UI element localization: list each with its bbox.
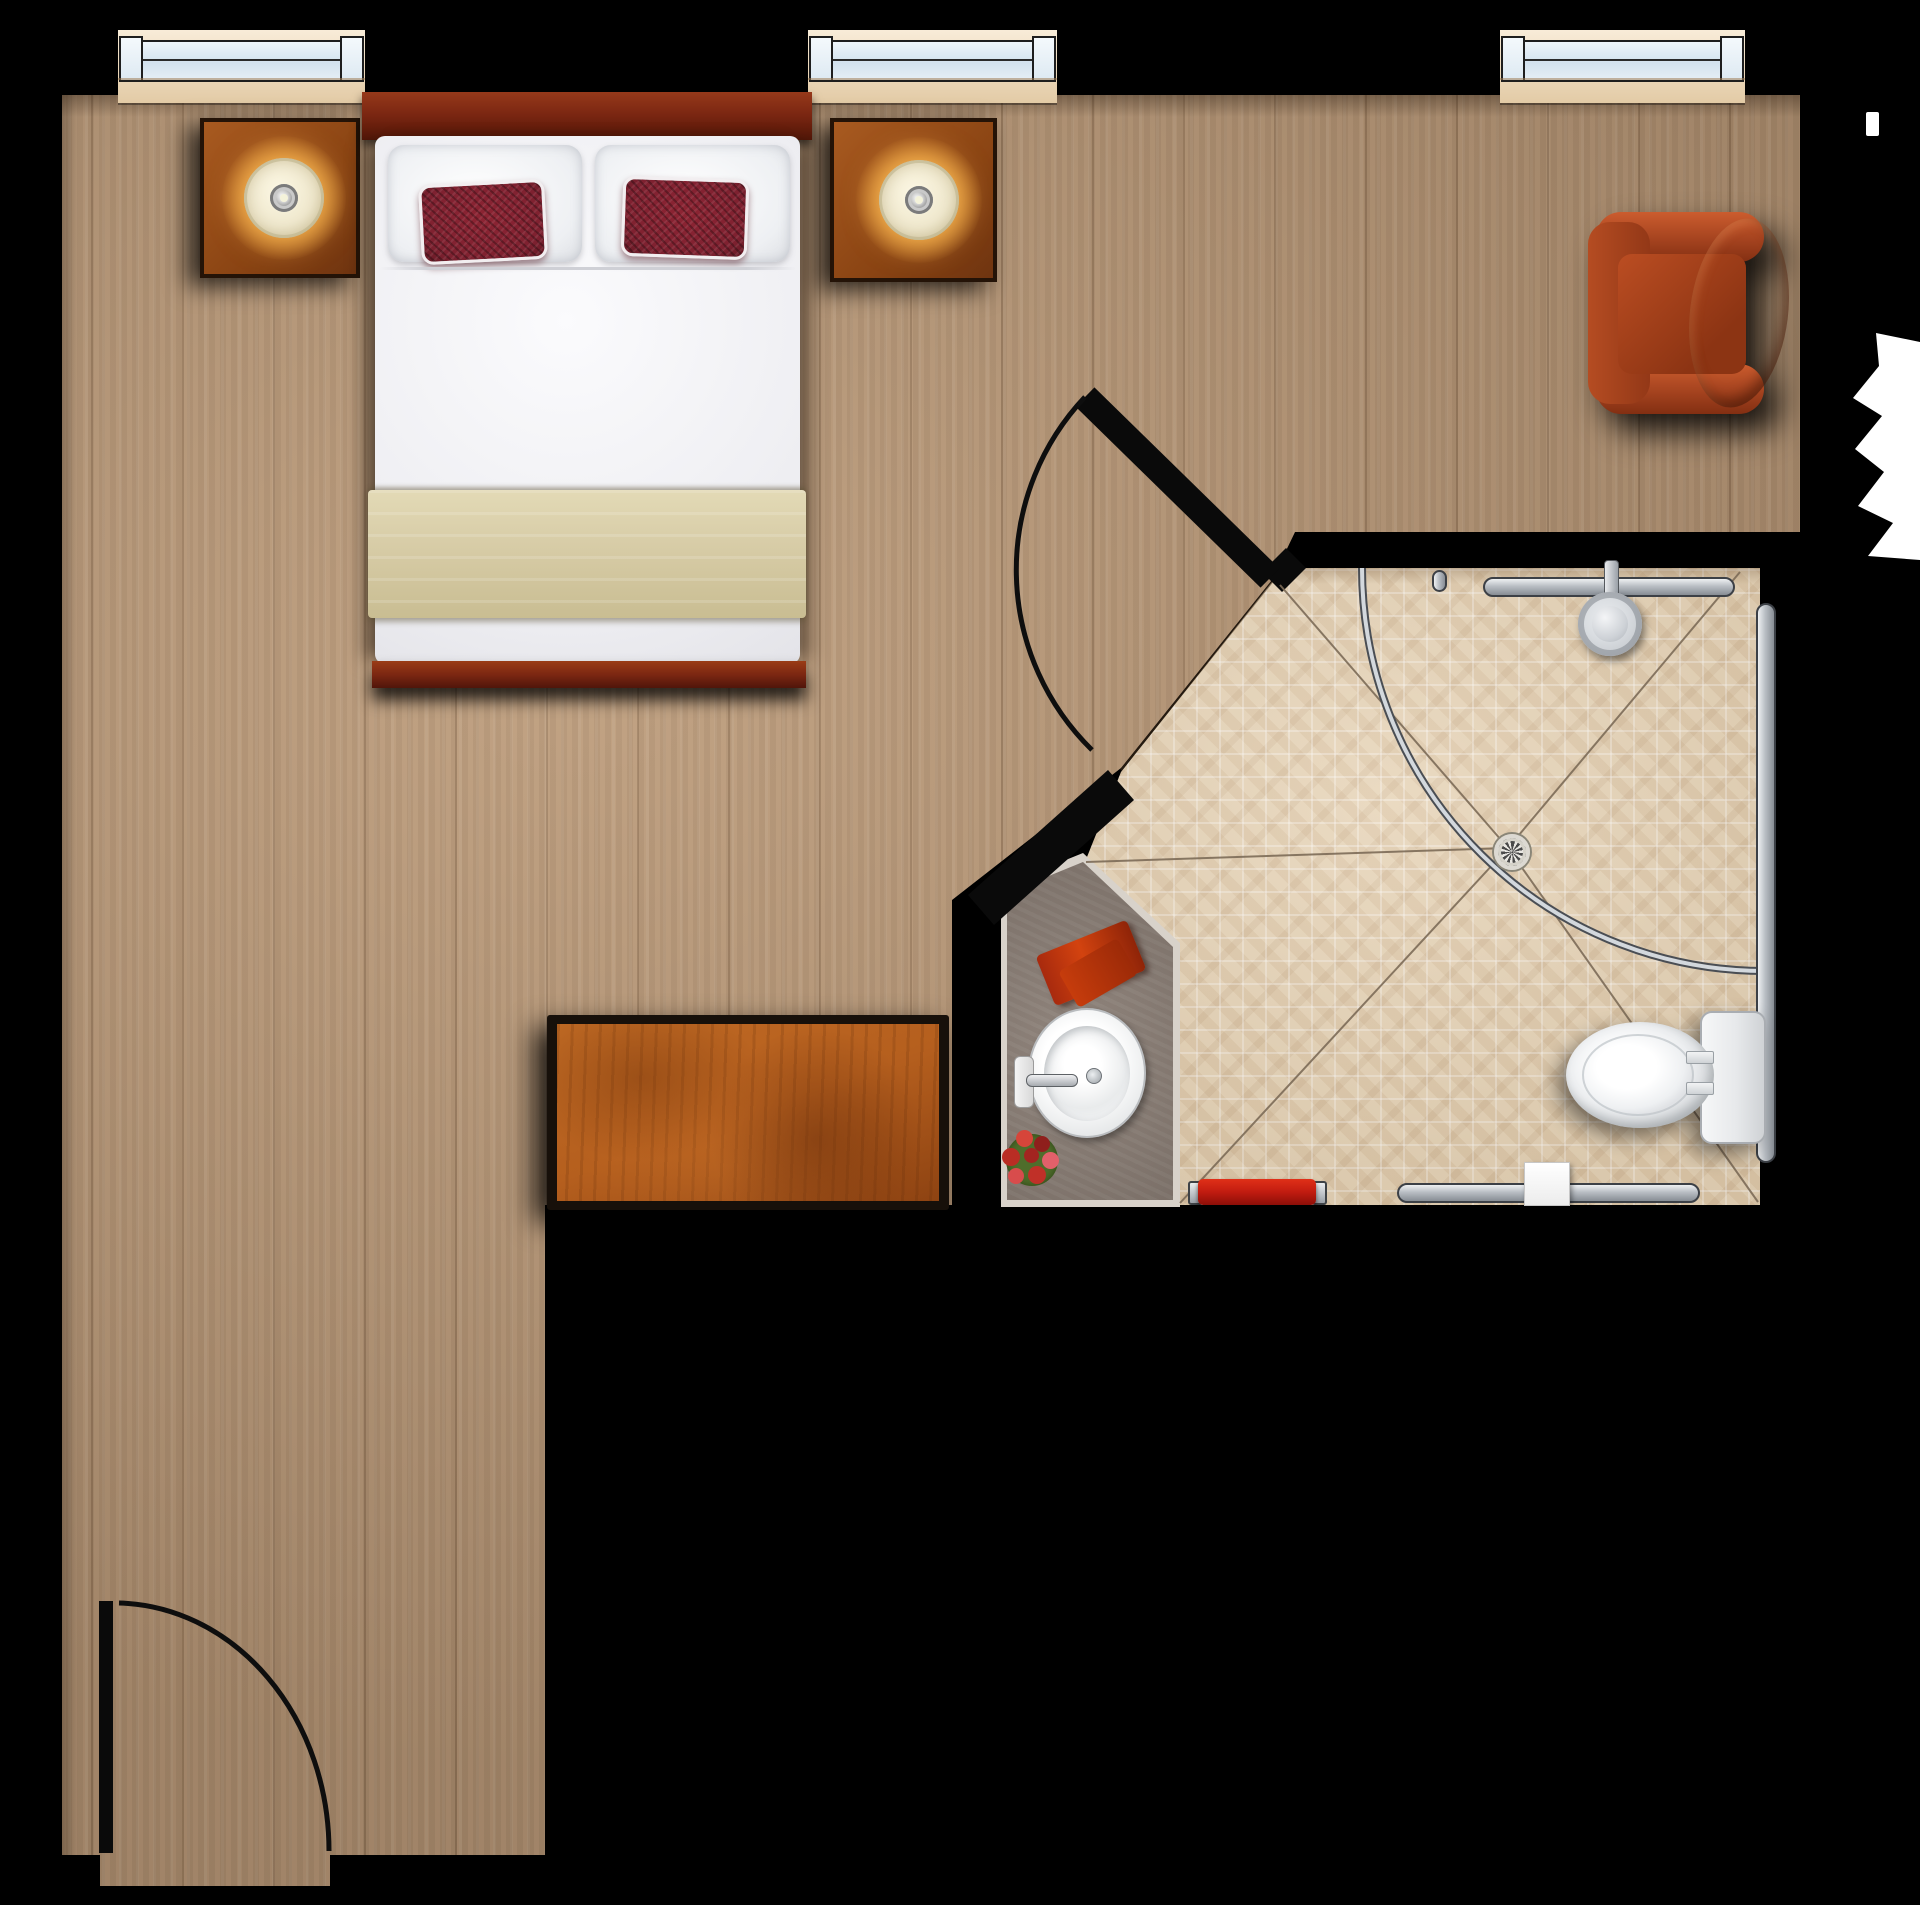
flower — [1002, 1148, 1020, 1166]
flower — [1028, 1166, 1046, 1184]
window-mullion — [817, 59, 1048, 61]
window-end-cap — [809, 36, 833, 82]
window-end-cap — [1720, 36, 1744, 82]
shower-curtain-rod-outline — [1362, 568, 1770, 971]
dresser — [547, 1015, 949, 1210]
bed-sheet-fold-line — [380, 267, 796, 270]
window-sill-line — [1500, 78, 1745, 80]
lamp-bulb-highlight — [280, 194, 288, 202]
window-left-glass — [127, 40, 356, 82]
flower — [1042, 1152, 1059, 1169]
tissue-box — [1524, 1162, 1570, 1206]
shower-drain — [1494, 834, 1530, 870]
dresser-top — [557, 1024, 939, 1201]
armchair — [1588, 212, 1788, 414]
shower-curtain-rod — [1362, 568, 1770, 971]
sink-drain — [1086, 1068, 1102, 1084]
curtain-hook-stub — [1432, 570, 1447, 592]
window-right-glass — [1509, 40, 1736, 82]
entry-door-swing-arc — [119, 1603, 329, 1851]
window-end-cap — [340, 36, 364, 82]
window-mullion — [127, 59, 356, 61]
bed-footboard — [372, 661, 806, 688]
window-sill-line — [808, 78, 1057, 80]
flower — [1024, 1148, 1039, 1163]
diagonal-wall — [968, 770, 1134, 925]
lamp-bulb-highlight — [915, 196, 923, 204]
flower — [1008, 1168, 1024, 1184]
window-end-cap — [1032, 36, 1056, 82]
nightstand-right — [830, 118, 997, 282]
floor-plan-canvas — [0, 0, 1920, 1905]
flower — [1016, 1130, 1033, 1147]
window-end-cap — [1501, 36, 1525, 82]
window-mullion — [1509, 59, 1736, 61]
bed-headboard — [362, 92, 812, 140]
bathroom-door-leaf — [1085, 397, 1270, 578]
nightstand-left — [200, 118, 360, 278]
shower-head — [1578, 592, 1642, 656]
right-edge-white-speck — [1866, 112, 1879, 136]
window-left — [118, 30, 365, 103]
towel-bar-red-towel — [1198, 1179, 1316, 1205]
bathroom-door-swing-arc — [1016, 397, 1092, 750]
toilet-lid — [1582, 1034, 1694, 1116]
faucet-spout — [1026, 1074, 1078, 1087]
doorway-seam — [1121, 582, 1272, 770]
window-end-cap — [119, 36, 143, 82]
toilet-hinge — [1686, 1082, 1714, 1095]
window-middle — [808, 30, 1057, 103]
window-right — [1500, 30, 1745, 103]
bed-cushion-right — [621, 176, 750, 260]
window-sill-line — [118, 78, 365, 80]
bed-cushion-left — [418, 179, 548, 265]
toilet-hinge — [1686, 1051, 1714, 1064]
window-middle-glass — [817, 40, 1048, 82]
flower-bouquet — [1000, 1126, 1064, 1190]
bed-blanket — [368, 490, 806, 618]
